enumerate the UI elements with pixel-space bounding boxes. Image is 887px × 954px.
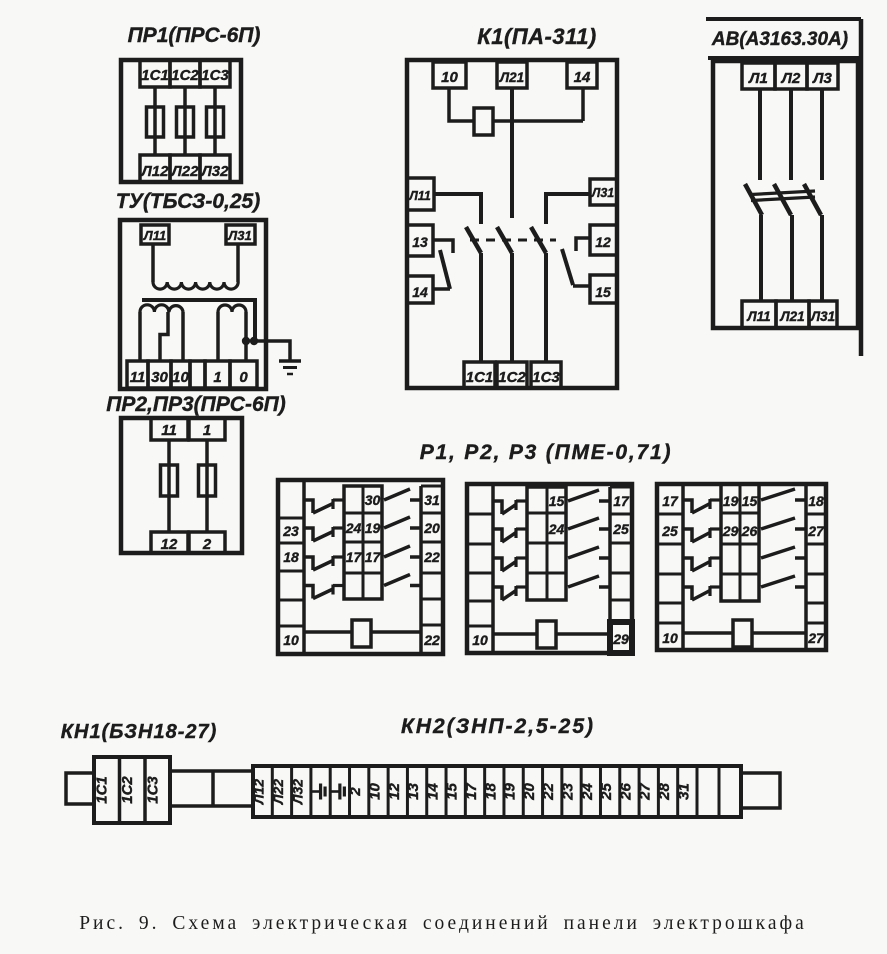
svg-text:Л22: Л22 (171, 163, 200, 180)
svg-text:КН2(ЗНП-2,5-25): КН2(ЗНП-2,5-25) (401, 715, 595, 738)
svg-text:18: 18 (808, 493, 824, 509)
svg-text:Р1, Р2, Р3 (ПМЕ-0,71): Р1, Р2, Р3 (ПМЕ-0,71) (420, 441, 673, 464)
svg-text:29: 29 (722, 523, 739, 539)
svg-text:Рис. 9. Схема электрическая со: Рис. 9. Схема электрическая соединений п… (79, 913, 807, 934)
svg-text:31: 31 (424, 492, 440, 508)
svg-text:2: 2 (202, 536, 212, 553)
svg-text:14: 14 (424, 783, 441, 800)
svg-text:Л31: Л31 (810, 309, 835, 324)
svg-text:АВ(А3163.30А): АВ(А3163.30А) (711, 29, 848, 50)
svg-text:20: 20 (423, 520, 440, 536)
svg-text:20: 20 (521, 783, 538, 801)
svg-text:Л11: Л11 (143, 228, 166, 243)
svg-text:Л12: Л12 (141, 163, 170, 180)
svg-text:22: 22 (423, 549, 440, 565)
svg-text:30: 30 (151, 369, 168, 386)
svg-text:27: 27 (637, 783, 654, 801)
svg-text:10: 10 (283, 632, 299, 648)
svg-text:13: 13 (412, 234, 428, 250)
svg-text:Л21: Л21 (499, 70, 524, 85)
svg-text:15: 15 (549, 493, 565, 509)
svg-text:17: 17 (346, 549, 363, 565)
svg-text:1С2: 1С2 (171, 67, 199, 84)
svg-text:10: 10 (441, 69, 458, 86)
svg-text:17: 17 (365, 549, 382, 565)
svg-text:КН1(БЗН18-27): КН1(БЗН18-27) (61, 721, 218, 743)
svg-text:27: 27 (807, 523, 825, 539)
svg-text:31: 31 (675, 783, 692, 800)
svg-text:Л22: Л22 (270, 779, 286, 805)
svg-text:Л31: Л31 (227, 228, 251, 243)
svg-text:26: 26 (741, 523, 758, 539)
svg-text:17: 17 (463, 783, 480, 800)
svg-text:11: 11 (161, 422, 177, 439)
svg-text:12: 12 (161, 536, 178, 553)
svg-text:Л12: Л12 (251, 779, 267, 805)
svg-text:24: 24 (345, 520, 362, 536)
svg-text:28: 28 (656, 783, 673, 801)
svg-text:1С1: 1С1 (466, 369, 494, 386)
svg-text:1С3: 1С3 (201, 67, 229, 84)
svg-text:К1(ПА-311): К1(ПА-311) (477, 24, 597, 49)
svg-text:ПР1(ПРС-6П): ПР1(ПРС-6П) (128, 24, 261, 47)
svg-text:Л11: Л11 (408, 189, 431, 203)
svg-text:25: 25 (598, 783, 615, 801)
svg-text:25: 25 (612, 521, 629, 537)
svg-text:26: 26 (617, 783, 634, 801)
svg-text:Л32: Л32 (289, 779, 305, 805)
svg-text:22: 22 (540, 783, 557, 801)
svg-text:27: 27 (807, 630, 825, 646)
svg-text:30: 30 (365, 492, 381, 508)
svg-text:10: 10 (472, 632, 488, 648)
svg-text:1С2: 1С2 (119, 776, 136, 804)
svg-text:18: 18 (283, 549, 299, 565)
svg-text:1С1: 1С1 (94, 776, 111, 804)
svg-text:ТУ(ТБСЗ-0,25): ТУ(ТБСЗ-0,25) (116, 190, 260, 213)
svg-text:17: 17 (613, 493, 630, 509)
svg-text:18: 18 (482, 783, 499, 800)
svg-text:24: 24 (579, 783, 596, 801)
svg-text:0: 0 (239, 369, 248, 386)
svg-text:Л3: Л3 (812, 70, 832, 87)
svg-text:25: 25 (661, 523, 678, 539)
svg-text:2: 2 (347, 787, 364, 797)
svg-text:1: 1 (203, 422, 211, 439)
svg-text:Л21: Л21 (779, 309, 804, 324)
svg-text:1С1: 1С1 (141, 67, 169, 84)
svg-text:24: 24 (548, 521, 565, 537)
svg-text:10: 10 (662, 630, 678, 646)
svg-text:1С3: 1С3 (144, 776, 161, 804)
svg-text:Л32: Л32 (201, 163, 230, 180)
svg-text:15: 15 (444, 783, 461, 800)
svg-text:10: 10 (366, 783, 383, 800)
svg-text:12: 12 (386, 783, 403, 800)
svg-text:Л31: Л31 (591, 186, 615, 200)
svg-text:1: 1 (213, 369, 221, 386)
svg-text:17: 17 (662, 493, 679, 509)
svg-text:1С2: 1С2 (498, 369, 526, 386)
svg-text:10: 10 (172, 369, 189, 386)
svg-text:19: 19 (365, 520, 381, 536)
svg-text:14: 14 (412, 284, 428, 300)
svg-text:11: 11 (130, 369, 146, 386)
svg-text:15: 15 (595, 284, 611, 300)
svg-text:13: 13 (405, 783, 422, 800)
svg-text:23: 23 (282, 523, 299, 539)
svg-text:Л11: Л11 (746, 309, 770, 324)
svg-text:23: 23 (560, 783, 577, 801)
svg-text:15: 15 (742, 493, 758, 509)
svg-text:22: 22 (423, 632, 440, 648)
svg-text:19: 19 (502, 783, 519, 800)
svg-text:19: 19 (723, 493, 739, 509)
svg-text:1С3: 1С3 (532, 369, 560, 386)
svg-text:Л1: Л1 (748, 70, 768, 87)
svg-text:ПР2,ПР3(ПРС-6П): ПР2,ПР3(ПРС-6П) (106, 393, 285, 416)
svg-text:29: 29 (612, 631, 629, 647)
svg-text:Л2: Л2 (781, 70, 801, 87)
svg-text:12: 12 (595, 234, 611, 250)
svg-text:14: 14 (574, 69, 591, 86)
